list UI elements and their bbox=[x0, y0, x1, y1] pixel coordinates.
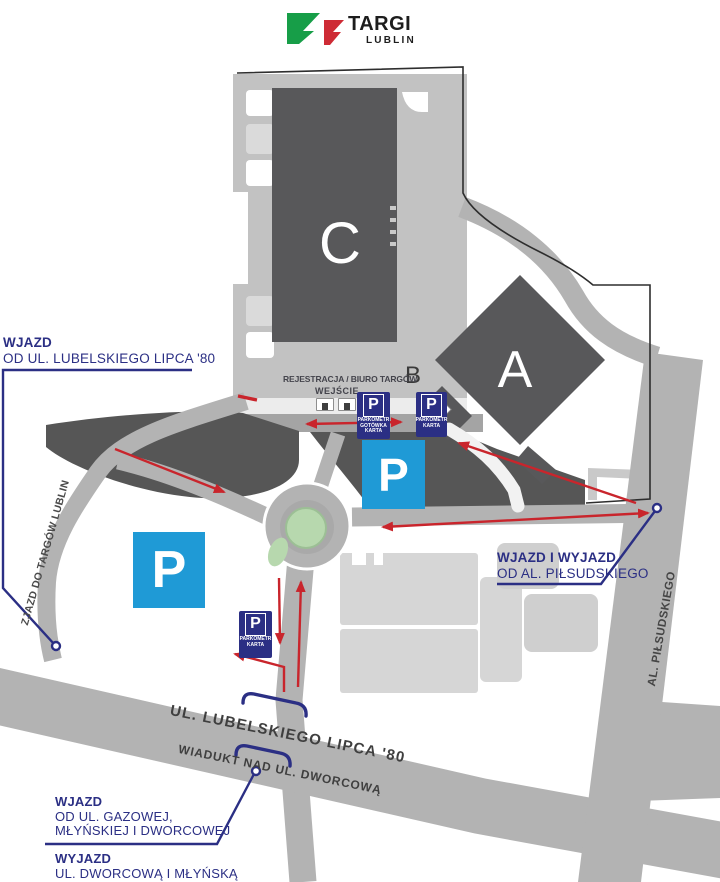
parking-lot-west: P bbox=[133, 532, 205, 608]
parking-lot-central: P bbox=[362, 440, 425, 509]
parking-sign-p: P bbox=[421, 394, 442, 417]
parking-p-letter: P bbox=[378, 448, 409, 502]
targi-lublin-access-map: TARGI LUBLIN C A B REJESTRACJA / BIURO T… bbox=[0, 0, 720, 882]
parking-sign-caption: PARKOMETR KARTA bbox=[240, 637, 272, 648]
parking-sign-caption: PARKOMETR KARTA bbox=[416, 418, 448, 429]
entrance-door-icon bbox=[338, 398, 356, 411]
hall-a-label: A bbox=[480, 340, 550, 400]
targi-lublin-logo-mark bbox=[287, 13, 344, 45]
door-leaf bbox=[344, 403, 350, 410]
parking-sign-caption: PARKOMETR GOTÓWKA KARTA bbox=[358, 418, 390, 435]
logo-title: TARGI bbox=[348, 13, 411, 36]
entry-top-left-subtitle: OD UL. LUBELSKIEGO LIPCA '80 bbox=[3, 351, 215, 366]
parking-meter-sign-card-south: P PARKOMETR KARTA bbox=[239, 611, 272, 658]
circle-marker-icon bbox=[653, 504, 661, 512]
parking-meter-sign-card-east: P PARKOMETR KARTA bbox=[416, 392, 447, 437]
entry-bottom-title: WJAZD bbox=[55, 794, 102, 809]
caption-line: KARTA bbox=[416, 424, 448, 430]
circle-marker-icon bbox=[52, 642, 60, 650]
entry-exit-right-subtitle: OD AL. PIŁSUDSKIEGO bbox=[497, 566, 649, 581]
parking-sign-p: P bbox=[363, 394, 384, 417]
roundabout-island bbox=[286, 508, 326, 548]
parking-p-letter: P bbox=[152, 540, 187, 600]
entry-bottom-line2: OD UL. GAZOWEJ, bbox=[55, 809, 173, 824]
hall-c-label: C bbox=[305, 210, 375, 277]
entry-bottom-line3: MŁYŃSKIEJ I DWORCOWEJ bbox=[55, 823, 230, 838]
exit-bottom-title: WYJAZD bbox=[55, 851, 111, 866]
caption-line: KARTA bbox=[240, 643, 272, 649]
roundabout bbox=[264, 483, 350, 569]
registration-label: REJESTRACJA / BIURO TARGÓW bbox=[283, 374, 403, 384]
door-leaf bbox=[322, 403, 328, 410]
exit-bottom-line2: UL. DWORCOWĄ I MŁYŃSKĄ bbox=[55, 866, 238, 881]
logo-subtitle: LUBLIN bbox=[366, 35, 416, 46]
entry-exit-right-title: WJAZD I WYJAZD bbox=[497, 550, 616, 565]
parking-sign-p: P bbox=[245, 613, 266, 636]
red-arrow bbox=[279, 578, 280, 643]
caption-line: KARTA bbox=[358, 429, 390, 435]
entrance-door-icon bbox=[316, 398, 334, 411]
parking-meter-sign-cash: P PARKOMETR GOTÓWKA KARTA bbox=[357, 392, 390, 439]
entry-top-left-title: WJAZD bbox=[3, 335, 52, 350]
